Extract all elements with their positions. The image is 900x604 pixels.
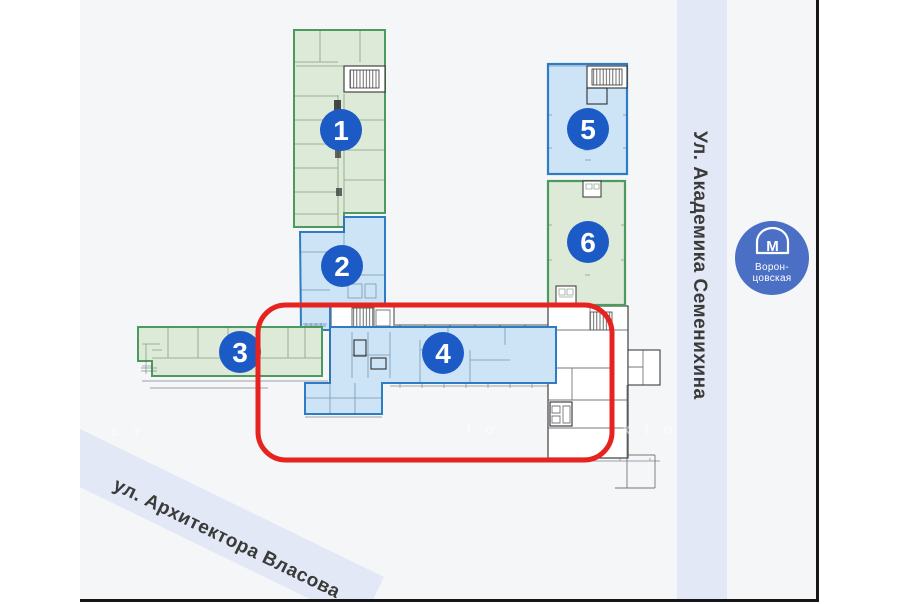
badge-building-4: 4 bbox=[422, 332, 464, 374]
street-label-vertical: Ул. Академика Семенихина bbox=[689, 131, 710, 400]
map-frame-bottom bbox=[80, 599, 819, 602]
metro-station-name-line2: цовская bbox=[752, 273, 791, 284]
svg-text:2: 2 bbox=[334, 251, 350, 282]
svg-text:1: 1 bbox=[333, 115, 349, 146]
svg-text:6: 6 bbox=[580, 227, 596, 258]
metro-station-name-line1: Ворон- bbox=[755, 262, 789, 273]
badge-building-3: 3 bbox=[219, 331, 261, 373]
badge-building-5: 5 bbox=[567, 108, 609, 150]
metro-m-letter: М bbox=[766, 238, 779, 255]
badge-building-6: 6 bbox=[567, 221, 609, 263]
svg-text:f o: f o bbox=[466, 421, 499, 438]
svg-text:x f o: x f o bbox=[622, 421, 678, 438]
map-frame-right bbox=[816, 0, 819, 602]
svg-text:е т: е т bbox=[110, 423, 145, 440]
metro-station-badge: М Ворон- цовская bbox=[735, 221, 809, 295]
badge-building-2: 2 bbox=[321, 245, 363, 287]
svg-text:5: 5 bbox=[580, 114, 596, 145]
svg-text:4: 4 bbox=[435, 338, 451, 369]
site-plan-map: е т f o x f o 1 2 3 4 5 bbox=[0, 0, 900, 604]
svg-text:3: 3 bbox=[232, 337, 248, 368]
site-plan-slide: е т f o x f o 1 2 3 4 5 bbox=[0, 0, 900, 604]
badge-building-1: 1 bbox=[320, 109, 362, 151]
